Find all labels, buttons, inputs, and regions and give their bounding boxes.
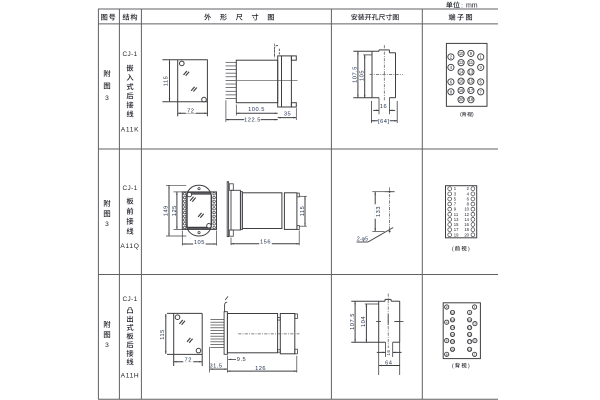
svg-text:18: 18: [459, 88, 464, 93]
svg-text:CJ-1: CJ-1: [122, 185, 137, 192]
svg-text:19: 19: [468, 347, 472, 351]
svg-text:A11K: A11K: [121, 127, 139, 134]
svg-text:2-φ5: 2-φ5: [357, 237, 368, 243]
svg-text:16: 16: [451, 332, 455, 336]
svg-text:107.5: 107.5: [350, 313, 356, 330]
svg-text:72: 72: [185, 358, 192, 364]
svg-text:[64]: [64]: [378, 119, 390, 125]
svg-text:): ): [472, 112, 474, 118]
svg-text:(: (: [460, 112, 462, 118]
svg-text:A11Q: A11Q: [120, 243, 139, 250]
svg-text:35: 35: [284, 112, 291, 118]
svg-text:104: 104: [361, 316, 367, 327]
svg-text:(: (: [452, 363, 454, 369]
svg-text:CJ-1: CJ-1: [122, 51, 137, 58]
svg-text:19: 19: [454, 232, 459, 237]
svg-text:100.5: 100.5: [248, 107, 265, 113]
svg-text:64: 64: [385, 361, 392, 367]
svg-text:107.5: 107.5: [352, 66, 358, 83]
svg-text:11: 11: [469, 60, 474, 65]
svg-text:11: 11: [468, 318, 471, 322]
svg-text:): ): [468, 363, 470, 369]
svg-text:13: 13: [469, 69, 474, 74]
svg-text:(: (: [452, 246, 454, 252]
svg-text:31.5: 31.5: [209, 363, 222, 369]
svg-text:mm: mm: [466, 3, 478, 10]
svg-text:): ): [468, 246, 470, 252]
svg-text:CJ-1: CJ-1: [122, 296, 137, 303]
svg-text:3: 3: [105, 342, 109, 349]
svg-text:20: 20: [464, 232, 469, 237]
svg-text:72: 72: [187, 108, 194, 114]
svg-text:3: 3: [105, 221, 109, 228]
svg-text:13: 13: [468, 326, 472, 330]
svg-text:15: 15: [469, 79, 474, 84]
svg-text:12: 12: [451, 318, 455, 322]
svg-text:17: 17: [468, 340, 472, 344]
svg-text:12: 12: [459, 60, 464, 65]
svg-text:115: 115: [300, 206, 306, 217]
svg-text:15: 15: [468, 332, 472, 336]
svg-text:20: 20: [459, 97, 464, 102]
svg-text:17: 17: [469, 88, 474, 93]
svg-text:133: 133: [376, 206, 382, 217]
svg-text:9.5: 9.5: [237, 357, 246, 363]
svg-text:125: 125: [172, 205, 178, 216]
svg-text:14: 14: [451, 326, 455, 330]
svg-text:16: 16: [386, 350, 391, 356]
svg-text:105: 105: [194, 240, 205, 246]
svg-text:10: 10: [451, 310, 455, 314]
svg-text:115: 115: [164, 76, 170, 87]
svg-text:156: 156: [260, 240, 271, 246]
svg-text:16: 16: [380, 104, 387, 110]
svg-text:14: 14: [459, 69, 464, 74]
svg-text::: :: [461, 2, 463, 9]
svg-text:126: 126: [255, 366, 266, 372]
svg-text:19: 19: [469, 97, 474, 102]
svg-text:A11H: A11H: [121, 373, 140, 380]
svg-text:105: 105: [360, 70, 366, 81]
svg-text:10: 10: [459, 51, 464, 56]
svg-text:20: 20: [451, 347, 455, 351]
svg-text:3: 3: [105, 95, 109, 102]
svg-text:18: 18: [451, 340, 455, 344]
svg-text:16: 16: [459, 79, 464, 84]
svg-text:149: 149: [164, 205, 170, 216]
svg-text:115: 115: [160, 329, 166, 340]
svg-text:122.5: 122.5: [244, 117, 261, 123]
